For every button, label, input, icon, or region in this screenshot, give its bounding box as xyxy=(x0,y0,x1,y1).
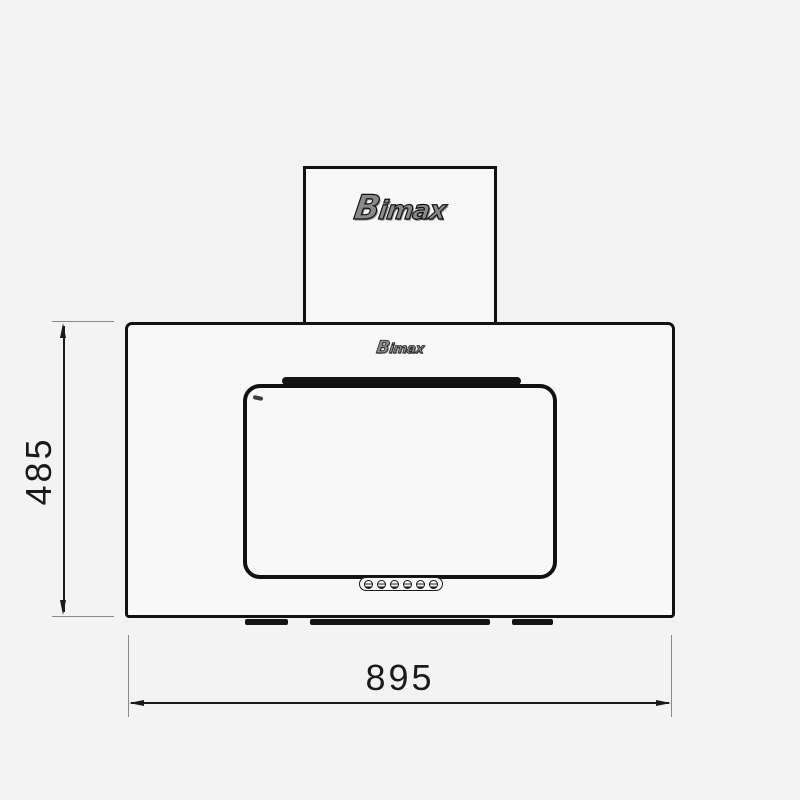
arrowhead-up-icon xyxy=(60,323,66,338)
vent-segment xyxy=(245,619,288,625)
arrowhead-down-icon xyxy=(60,600,66,615)
arrowhead-right-icon xyxy=(656,700,671,706)
arrowhead-left-icon xyxy=(129,700,144,706)
width-dimension-line xyxy=(131,702,669,704)
control-knob-icon xyxy=(390,580,399,589)
extension-line-bottom xyxy=(52,616,114,617)
height-dimension-label: 485 xyxy=(21,391,59,551)
control-knob-icon xyxy=(364,580,373,589)
vent-segment xyxy=(310,619,490,625)
dimension-drawing-canvas: Bimax Bimax 485 895 xyxy=(0,0,800,800)
glass-panel xyxy=(243,384,557,579)
extension-line-right xyxy=(671,635,672,717)
brand-logo-body: Bimax xyxy=(124,340,676,358)
height-dimension-line xyxy=(63,326,65,612)
control-knob-icon xyxy=(403,580,412,589)
control-button-strip xyxy=(359,577,443,591)
control-knob-icon xyxy=(416,580,425,589)
width-dimension-label: 895 xyxy=(300,660,500,696)
brand-logo-chimney: Bimax xyxy=(304,191,497,225)
chimney-duct: Bimax xyxy=(303,166,497,322)
vent-segment xyxy=(512,619,553,625)
control-knob-icon xyxy=(429,580,438,589)
extension-line-top xyxy=(52,321,114,322)
control-knob-icon xyxy=(377,580,386,589)
